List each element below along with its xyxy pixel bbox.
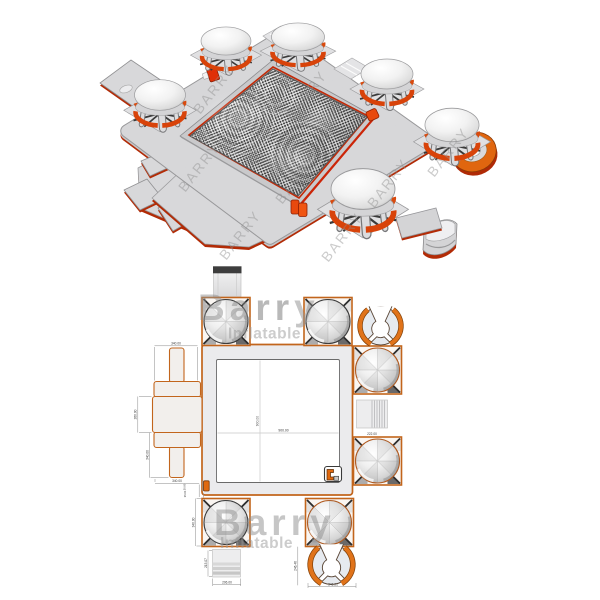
- svg-text:340.00: 340.00: [172, 479, 182, 483]
- svg-text:222.00: 222.00: [367, 432, 377, 436]
- svg-text:246.46: 246.46: [294, 561, 298, 571]
- svg-text:20.00: 20.00: [182, 483, 186, 490]
- svg-text:340.00: 340.00: [191, 517, 195, 527]
- svg-text:Inflatable: Inflatable: [228, 326, 301, 343]
- svg-text:340.00: 340.00: [145, 450, 149, 460]
- svg-text:900.00: 900.00: [255, 416, 259, 426]
- svg-text:340.00: 340.00: [171, 342, 181, 346]
- svg-text:260.00: 260.00: [134, 409, 138, 419]
- svg-text:215.07: 215.07: [204, 558, 208, 568]
- svg-text:35.00: 35.00: [183, 490, 187, 497]
- svg-text:Inflatable: Inflatable: [220, 535, 293, 552]
- svg-text:900.00: 900.00: [278, 429, 288, 433]
- svg-text:206.00: 206.00: [222, 581, 232, 585]
- svg-text:346.21: 346.21: [328, 583, 338, 587]
- svg-text:Barry: Barry: [198, 287, 320, 328]
